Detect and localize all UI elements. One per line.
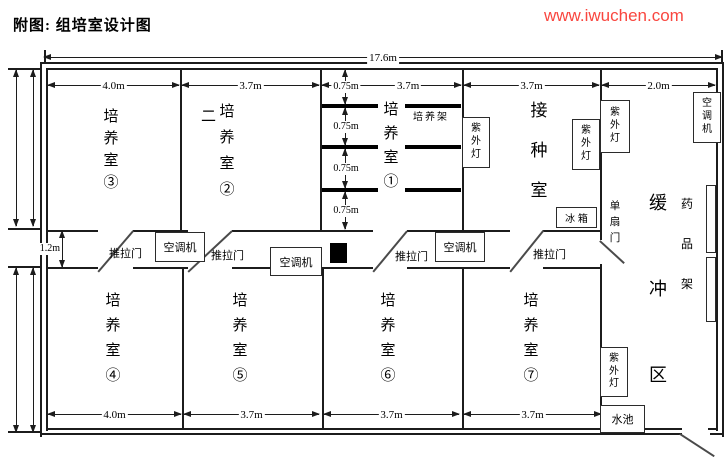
ac-unit-label: 空调机: [444, 239, 477, 255]
culture-rack-bar: [405, 145, 461, 149]
dim-label: 4.0m: [100, 80, 126, 92]
ac-unit-box: 空调机: [693, 92, 721, 143]
room2-label: 培养室②: [218, 99, 236, 203]
corridor-bottom-wall: [407, 267, 510, 269]
fridge-label: 冰 箱: [565, 210, 588, 225]
dim-rack-gap: 0.75m: [345, 192, 346, 229]
corridor-top-wall: [47, 230, 98, 232]
dim-label: 3.7m: [519, 409, 545, 421]
wall-room3-room2: [180, 69, 182, 230]
uv-lamp-box: 紫外灯: [600, 100, 630, 153]
buffer-zone-label: 缓冲区: [648, 160, 668, 418]
culture-rack-bar: [405, 188, 461, 192]
dim-buffer-width: 2.0m: [602, 85, 715, 86]
sliding-door-label: 推拉门: [395, 248, 428, 264]
sliding-door-label: 推拉门: [211, 247, 244, 263]
ac-unit-label: 空调机: [164, 239, 197, 255]
ac-unit-label: 空调机: [280, 254, 313, 270]
dim-top-block-height: [16, 70, 17, 226]
dim-room2-width: 3.7m: [182, 85, 319, 86]
watermark: www.iwuchen.com: [544, 6, 684, 26]
dim-label: 0.75m: [331, 163, 360, 175]
page-title: 附图: 组培室设计图: [13, 14, 152, 35]
dim-label: 1.2m: [38, 243, 62, 255]
sink-label: 水池: [612, 411, 634, 427]
room6-label: 培养室⑥: [379, 288, 397, 388]
room1-label: 培养室①: [382, 98, 400, 194]
sink-box: 水池: [600, 405, 645, 433]
wall-right-outer: [722, 62, 724, 437]
ac-unit-box: 空调机: [435, 232, 485, 262]
uv-lamp-box: 紫外灯: [462, 117, 490, 168]
medicine-rack-label: 药品架: [680, 184, 694, 304]
corridor-bottom-wall: [47, 267, 98, 269]
uv-lamp-label: 紫外灯: [581, 125, 591, 163]
culture-rack-bar: [322, 104, 378, 108]
culture-rack-bar: [322, 145, 378, 149]
ac-unit-box: 空调机: [270, 247, 322, 276]
dim-tick: [8, 228, 40, 230]
dim-label: 2.0m: [645, 80, 671, 92]
medicine-shelf: [706, 257, 716, 322]
dim-inoculation-width: 3.7m: [464, 85, 599, 86]
single-door-label: 单扇门: [608, 198, 622, 246]
dim-room4-width: 4.0m: [48, 414, 181, 415]
uv-lamp-label: 紫外灯: [609, 353, 619, 391]
corridor-bottom-wall: [543, 267, 600, 269]
pillar-square: [330, 243, 347, 263]
sliding-door-label: 推拉门: [533, 246, 566, 262]
exit-door-leaf: [680, 433, 715, 457]
dim-label: 4.0m: [101, 409, 127, 421]
dim-room7-width: 3.7m: [464, 414, 601, 415]
culture-rack-label: 培养架: [413, 108, 449, 123]
inoculation-room-label: 接种室: [529, 91, 549, 211]
dim-rack-gap: 0.75m: [345, 108, 346, 145]
dim-bottom-block-height: [33, 268, 34, 432]
room4-label: 培养室④: [104, 288, 122, 388]
corridor-bottom-wall: [133, 267, 188, 269]
dim-rack-gap: 0.75m: [345, 149, 346, 188]
dim-label: 0.75m: [331, 81, 360, 93]
dim-label: 3.7m: [395, 80, 421, 92]
dim-top-block-height: [33, 70, 34, 226]
corridor-top-wall: [543, 230, 600, 232]
dim-rack-gap: 0.75m: [345, 70, 346, 104]
ac-unit-label: 空调机: [702, 98, 712, 136]
wall-top-inner: [46, 68, 718, 70]
uv-lamp-label: 紫外灯: [471, 123, 481, 161]
uv-lamp-box: 紫外灯: [600, 347, 628, 397]
uv-lamp-label: 紫外灯: [610, 107, 620, 145]
room5-label: 培养室⑤: [231, 288, 249, 388]
corridor-top-wall: [232, 230, 373, 232]
dim-label: 0.75m: [331, 205, 360, 217]
sliding-door-label: 推拉门: [109, 245, 142, 261]
room7-label: 培养室⑦: [522, 288, 540, 388]
wall-room6-room7: [462, 268, 464, 429]
room3-label: 培养室③: [102, 106, 120, 194]
wall-buffer-upper: [600, 69, 602, 240]
dim-label: 3.7m: [378, 409, 404, 421]
wall-room5-room6: [322, 268, 324, 429]
fridge-box: 冰 箱: [556, 207, 597, 228]
dim-room6-width: 3.7m: [324, 414, 459, 415]
wall-bottom-outer: [40, 433, 682, 435]
wall-room4-room5: [182, 268, 184, 429]
wall-bottom-inner: [46, 428, 682, 430]
dim-corridor-height: 1.2m: [62, 231, 63, 267]
wall-bottom-inner-stub: [708, 428, 716, 430]
wall-bottom-outer-stub: [710, 433, 724, 435]
dim-overall-width: 17.6m: [44, 57, 722, 58]
dim-label: 0.75m: [331, 121, 360, 133]
culture-rack-bar: [322, 188, 378, 192]
dim-label: 3.7m: [237, 80, 263, 92]
dim-label: 17.6m: [367, 52, 399, 64]
dim-room3-width: 4.0m: [48, 85, 179, 86]
dim-bottom-block-height: [16, 268, 17, 432]
medicine-shelf: [706, 185, 716, 253]
dim-room5-width: 3.7m: [184, 414, 319, 415]
wall-room2-room1: [320, 69, 322, 230]
uv-lamp-box: 紫外灯: [572, 119, 600, 170]
room2-prefix-label: 二: [201, 105, 216, 126]
ac-unit-box: 空调机: [155, 232, 205, 262]
floor-plan: 附图: 组培室设计图 www.iwuchen.com 17.6m 4.0: [0, 0, 728, 457]
dim-label: 3.7m: [238, 409, 264, 421]
